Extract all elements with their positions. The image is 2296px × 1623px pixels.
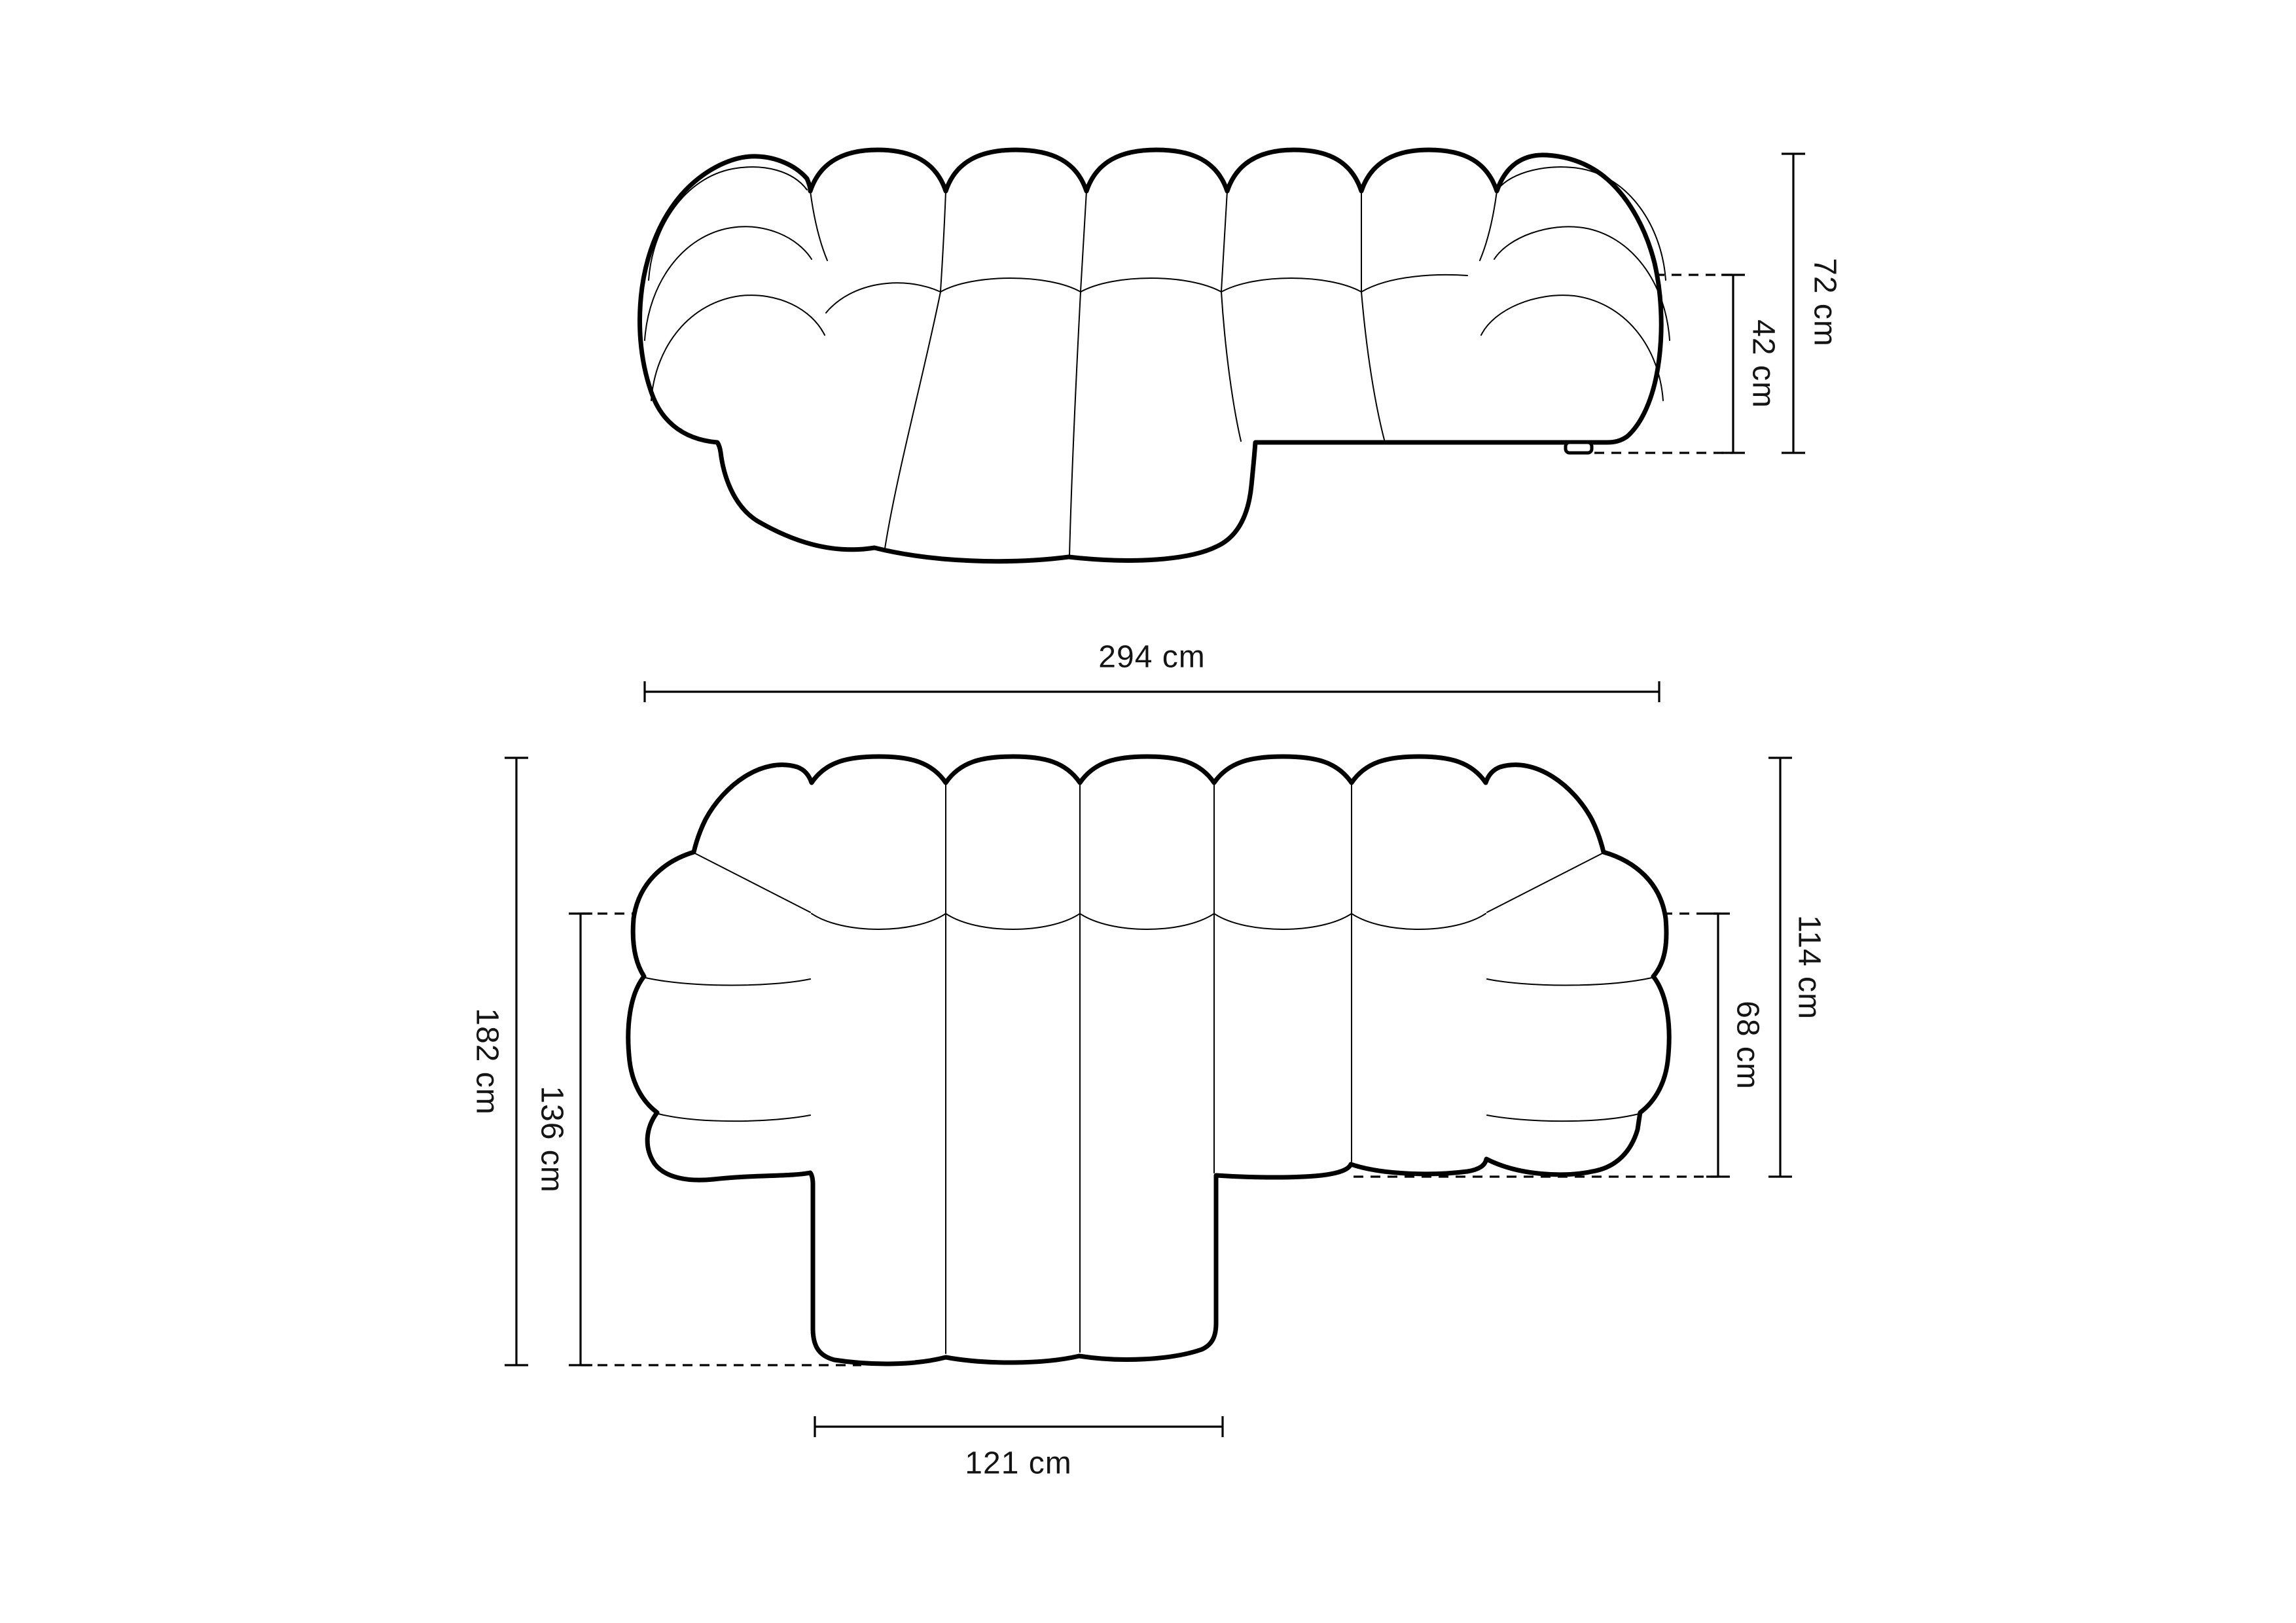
sofa-dimension-diagram: 72 cm 42 cm 294 cm 182 cm 136 cm 114 cm … (0, 0, 2296, 1623)
top-dim-body-depth-label: 114 cm (1791, 915, 1827, 1020)
front-sofa-outline (640, 150, 1662, 562)
front-sofa-foot (1566, 442, 1592, 453)
top-dim-overall-depth (505, 758, 528, 1365)
top-dim-seat-depth (1706, 914, 1730, 1177)
top-sofa-drawing (628, 757, 1669, 1364)
front-view (640, 150, 1805, 562)
top-sofa-outline (628, 757, 1669, 1364)
top-dim-overall-width-label: 294 cm (1098, 639, 1205, 675)
diagram-canvas (0, 0, 2296, 1623)
front-dim-seat-height-label: 42 cm (1746, 319, 1782, 408)
top-dim-chaise-inner-depth-label: 136 cm (534, 1086, 570, 1192)
top-dim-seat-depth-label: 68 cm (1730, 1001, 1766, 1090)
top-dim-body-depth (1768, 758, 1792, 1177)
front-dim-seat-height (1721, 275, 1745, 453)
top-dim-chaise-width (815, 1416, 1223, 1437)
front-dim-overall-height (1782, 154, 1805, 453)
front-dim-overall-height-label: 72 cm (1807, 258, 1843, 347)
top-dim-chaise-inner-depth (569, 914, 592, 1365)
top-dim-chaise-width-label: 121 cm (965, 1446, 1071, 1482)
top-dim-overall-depth-label: 182 cm (469, 1008, 505, 1115)
front-sofa-drawing (640, 150, 1670, 562)
top-dim-overall-width (645, 681, 1659, 702)
top-view (505, 681, 1792, 1437)
